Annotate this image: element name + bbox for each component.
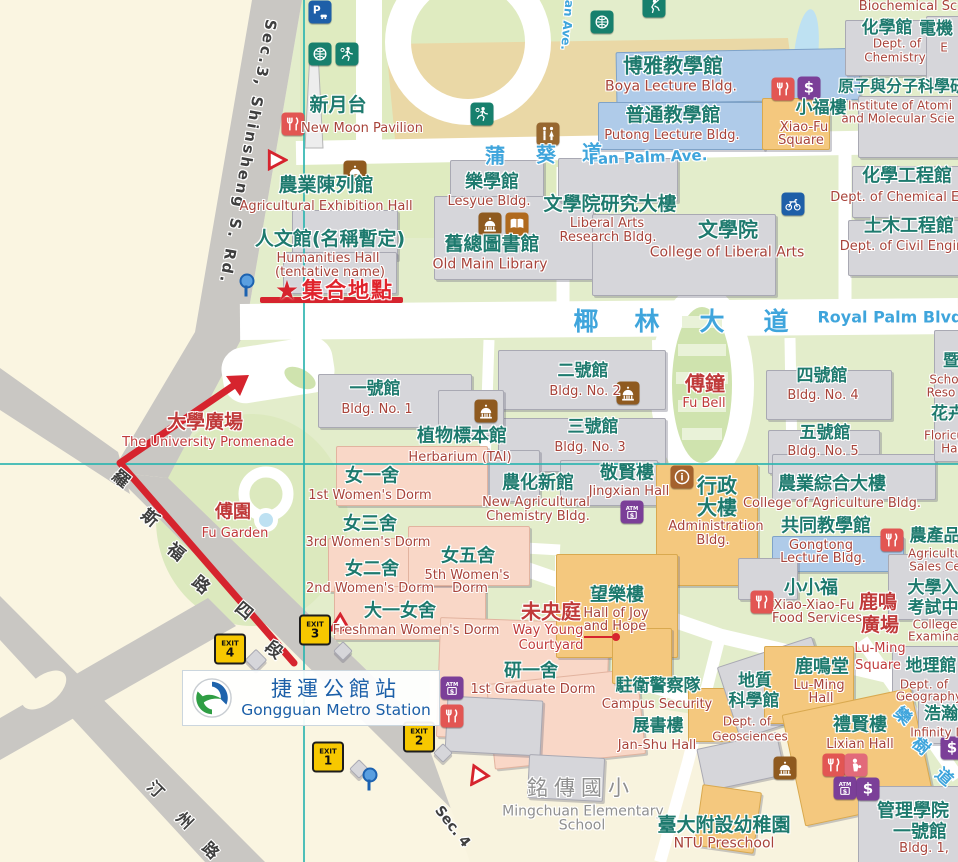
- atm-icon: ATM$: [834, 777, 857, 800]
- road-royalpalm-zh4: 道: [763, 309, 788, 335]
- w3-dorm-zh: 女三舍: [343, 516, 397, 535]
- fu-bell-zh: 傅鐘: [685, 374, 725, 395]
- agchem-en1: New Agricultural: [482, 496, 590, 510]
- bldg3-zh: 三號館: [568, 419, 619, 437]
- wayyoung-zh: 未央庭: [521, 602, 581, 623]
- grad-dorm-en: 1st Graduate Dorm: [470, 683, 595, 697]
- w3-dorm-en: 3rd Women's Dorm: [306, 536, 431, 550]
- humanities-zh: 人文館(名稱暫定): [255, 230, 405, 250]
- luming-hall-zh: 鹿鳴堂: [795, 659, 849, 678]
- atomic-en2: and Molecular Scie: [841, 113, 954, 126]
- exam-center-zh1: 大學入: [908, 580, 958, 598]
- ag-sales-en1: Agricultu: [908, 548, 958, 561]
- liberal-research-en2: Research Bldg.: [560, 231, 657, 245]
- bldg2-en: Bldg. No. 2: [549, 385, 620, 399]
- road-royalpalm-en: Royal Palm Blvd.: [817, 310, 958, 327]
- svg-text:P: P: [313, 4, 321, 17]
- management-en: Bldg. 1,: [899, 842, 949, 856]
- luming-square-en2: Square: [855, 659, 901, 673]
- grad-dorm-zh: 研一舍: [504, 663, 558, 682]
- lixian-en: Lixian Hall: [826, 738, 893, 752]
- basketball-icon: [309, 43, 332, 66]
- fu-garden-en: Fu Garden: [202, 527, 269, 541]
- new-moon-pavilion-en: New Moon Pavilion: [301, 122, 423, 136]
- geosciences-zh2: 科學館: [729, 693, 780, 711]
- restaurant-icon: [772, 78, 795, 101]
- wangle-zh: 望樂樓: [590, 587, 644, 606]
- gate-marker-icon: [266, 149, 288, 175]
- admin-zh1: 行政: [697, 476, 737, 497]
- map-pin-icon: [240, 274, 255, 289]
- w2-dorm-en: 2nd Women's Dorm: [306, 582, 434, 596]
- lixian-zh: 禮賢樓: [833, 717, 887, 736]
- svg-text:i: i: [680, 473, 683, 484]
- promenade-zh: 大學廣場: [167, 413, 243, 433]
- bldg1-zh: 一號館: [350, 381, 401, 399]
- xiaoxiaofu-zh: 小小福: [784, 580, 838, 599]
- humanities-en2: (tentative name): [275, 266, 385, 280]
- management-zh2: 一號館: [893, 824, 947, 843]
- bike-rental-icon: [782, 193, 805, 216]
- ee-zh: 電機: [919, 21, 953, 39]
- herbarium-en: Herbarium (TAI): [408, 451, 511, 465]
- atomic-en1: Institute of Atomi: [848, 100, 952, 113]
- exam-center-zh2: 考試中: [908, 600, 958, 618]
- bldg3-en: Bldg. No. 3: [554, 441, 625, 455]
- school-resources-en2: Reso: [927, 387, 956, 400]
- atomic-zh: 原子與分子科學研: [838, 79, 958, 96]
- bldg5-en: Bldg. No. 5: [787, 445, 858, 459]
- security-en: Campus Security: [602, 698, 713, 712]
- freshman-dorm-en: Freshman Women's Dorm: [333, 624, 500, 638]
- road-royalpalm-zh1: 椰: [573, 309, 598, 335]
- management-zh1: 管理學院: [877, 803, 949, 822]
- w1-dorm-en: 1st Women's Dorm: [308, 489, 431, 503]
- floriculture-zh: 花卉: [931, 406, 958, 424]
- geosciences-en2: Geosciences: [712, 731, 787, 744]
- xiaofu-zh: 小福樓: [796, 100, 847, 118]
- metro-exit-1: EXIT1: [312, 742, 344, 773]
- liberal-arts-en: College of Liberal Arts: [650, 246, 805, 261]
- xiaoxiaofu-en2: Food Services: [772, 612, 862, 626]
- road-fanpalm-zh1: 蒲: [485, 146, 505, 167]
- liberal-research-zh: 文學院研究大樓: [543, 195, 676, 215]
- bldg2-zh: 二號館: [558, 363, 609, 381]
- mingchuan-zh: 銘傳國小: [527, 777, 635, 799]
- map-pin-icon: [363, 768, 378, 783]
- baseball-icon: [643, 0, 666, 18]
- infinity-en: Infinity M: [910, 727, 958, 740]
- admin-en2: Bldg.: [696, 534, 729, 548]
- atm-icon: ATM$: [441, 677, 464, 700]
- currency-exchange-icon: $: [857, 778, 880, 801]
- sports-icon: [471, 103, 494, 126]
- restaurant-icon: [881, 529, 904, 552]
- college-ag-en: College of Agriculture Bldg.: [743, 497, 921, 511]
- jingxian-en: Jingxian Hall: [589, 485, 670, 499]
- road-royalpalm-zh2: 林: [634, 309, 659, 335]
- ag-exhibition-en: Agricultural Exhibition Hall: [239, 200, 412, 214]
- ag-sales-en2: Sales Ce: [909, 561, 958, 574]
- metro-logo-icon: [191, 677, 233, 719]
- putong-zh: 普通教學館: [625, 106, 720, 126]
- gongtong-zh: 共同教學館: [781, 518, 871, 537]
- bldg1-en: Bldg. No. 1: [341, 403, 412, 417]
- basketball-icon: [591, 11, 614, 34]
- promenade-en: The University Promenade: [122, 436, 294, 450]
- civil-eng-en: Dept. of Civil Engine: [840, 240, 958, 254]
- boya-zh: 博雅教學館: [623, 56, 723, 77]
- road-royalpalm-zh3: 大: [699, 309, 724, 335]
- janshu-zh: 展書樓: [633, 718, 684, 736]
- civil-eng-zh: 土木工程館: [864, 218, 954, 237]
- restaurant-icon: [751, 591, 774, 614]
- ee-en: E: [940, 42, 948, 55]
- label-pointer-dot: [612, 633, 620, 641]
- wayyoung-en2: Courtyard: [519, 639, 584, 653]
- floriculture-en2: Hal: [941, 443, 958, 456]
- floriculture-en1: Floricu: [924, 430, 958, 443]
- lesyue-en: Lesyue Bldg.: [447, 195, 530, 209]
- restaurant-icon: [823, 754, 846, 777]
- mingchuan-en2: School: [559, 819, 605, 834]
- preschool-zh: 臺大附設幼稚園: [657, 816, 790, 836]
- restaurant-icon: [441, 705, 464, 728]
- luming-square-zh2: 廣場: [861, 616, 899, 636]
- exam-center-en2: Examina: [908, 631, 958, 644]
- atm-icon: ATM$: [621, 501, 644, 524]
- janshu-en: Jan-Shu Hall: [618, 739, 697, 753]
- road-fanpalm-zh2: 葵: [536, 145, 556, 166]
- bldg5-zh: 五號館: [800, 425, 851, 443]
- chemistry-zh: 化學館: [862, 20, 913, 38]
- meeting-point-label: 集合地點: [302, 279, 394, 301]
- metro-exit-4: EXIT4: [214, 634, 246, 665]
- agchem-zh: 農化新館: [502, 475, 574, 494]
- svg-text:$: $: [630, 511, 634, 519]
- nursing-room-icon: [845, 754, 868, 777]
- parking-icon: P: [309, 1, 332, 24]
- boya-en: Boya Lecture Bldg.: [605, 80, 737, 95]
- agchem-en2: Chemistry Bldg.: [486, 510, 590, 524]
- gongtong-en2: Lecture Bldg.: [780, 552, 866, 566]
- lesyue-zh: 樂學館: [465, 174, 519, 193]
- liberal-arts-zh: 文學院: [698, 220, 758, 241]
- school-resources-zh: 暨: [943, 353, 958, 370]
- w5-dorm-en2: Dorm: [452, 582, 488, 596]
- security-zh: 駐衛警察隊: [616, 678, 701, 696]
- luming-hall-en2: Hall: [809, 692, 834, 706]
- biochem-en: Biochemical Sc: [859, 0, 957, 14]
- old-library-zh: 舊總圖書館: [444, 235, 539, 255]
- w5-dorm-zh: 女五舍: [441, 548, 495, 567]
- putong-en: Putong Lecture Bldg.: [604, 129, 739, 143]
- ag-sales-zh: 農產品: [910, 528, 958, 546]
- infinity-zh: 浩瀚: [924, 706, 958, 724]
- chem-eng-zh: 化學工程館: [862, 168, 952, 187]
- wayyoung-en1: Way Young: [513, 624, 584, 638]
- w1-dorm-zh: 女一舍: [345, 468, 399, 487]
- school-resources-en1: Scho: [929, 374, 958, 387]
- fu-bell-en: Fu Bell: [682, 397, 725, 411]
- w2-dorm-zh: 女二舍: [345, 561, 399, 580]
- metro-station-card: 捷運公館站 Gongguan Metro Station: [182, 670, 440, 726]
- xiaofu-en2: Square: [778, 134, 824, 148]
- chemistry-en1: Dept. of: [873, 38, 921, 51]
- metro-exit-2: EXIT2: [403, 722, 435, 753]
- luming-square-en1: Lu-Ming: [854, 642, 905, 656]
- college-ag-zh: 農業綜合大樓: [778, 476, 886, 495]
- geography-en2: Geography: [896, 691, 958, 704]
- currency-exchange-icon: $: [941, 737, 958, 760]
- historic-building-icon: [774, 757, 797, 780]
- ag-exhibition-zh: 農業陳列館: [278, 176, 373, 196]
- metro-station-name-zh: 捷運公館站: [233, 677, 439, 701]
- wangle-en2: and Hope: [584, 620, 647, 634]
- campus-map[interactable]: ★ 集合地點 捷運公館站 Gongguan Metro Station Sec.…: [0, 0, 958, 862]
- geosciences-en1: Dept. of: [723, 716, 771, 729]
- geosciences-zh1: 地質: [738, 673, 772, 691]
- historic-building-icon: [475, 400, 498, 423]
- admin-zh2: 大樓: [697, 498, 737, 519]
- luming-square-zh1: 鹿鳴: [859, 593, 897, 613]
- herbarium-zh: 植物標本館: [417, 428, 507, 447]
- info-icon: i: [671, 466, 694, 489]
- new-moon-pavilion-zh: 新月台: [309, 96, 366, 116]
- bldg4-zh: 四號館: [797, 368, 848, 386]
- bldg4-en: Bldg. No. 4: [787, 389, 858, 403]
- metro-exit-3: EXIT3: [299, 615, 331, 646]
- jingxian-zh: 敬賢樓: [600, 465, 654, 484]
- admin-en1: Administration: [668, 520, 763, 534]
- sports-icon: [336, 43, 359, 66]
- humanities-en1: Humanities Hall: [276, 252, 379, 266]
- svg-text:$: $: [843, 787, 847, 795]
- chemistry-en2: Chemistry: [864, 52, 925, 65]
- currency-exchange-icon: $: [798, 77, 821, 100]
- freshman-dorm-zh: 大一女舍: [364, 603, 436, 622]
- chem-eng-en: Dept. of Chemical Eng: [830, 191, 958, 205]
- old-library-en: Old Main Library: [432, 258, 547, 273]
- geography-zh: 地理館: [906, 658, 957, 676]
- fu-garden-zh: 傅園: [215, 504, 251, 523]
- metro-station-name-en: Gongguan Metro Station: [233, 701, 439, 720]
- svg-text:$: $: [450, 687, 454, 695]
- preschool-en: NTU Preschool: [674, 837, 775, 852]
- liberal-research-en1: Liberal Arts: [570, 217, 644, 231]
